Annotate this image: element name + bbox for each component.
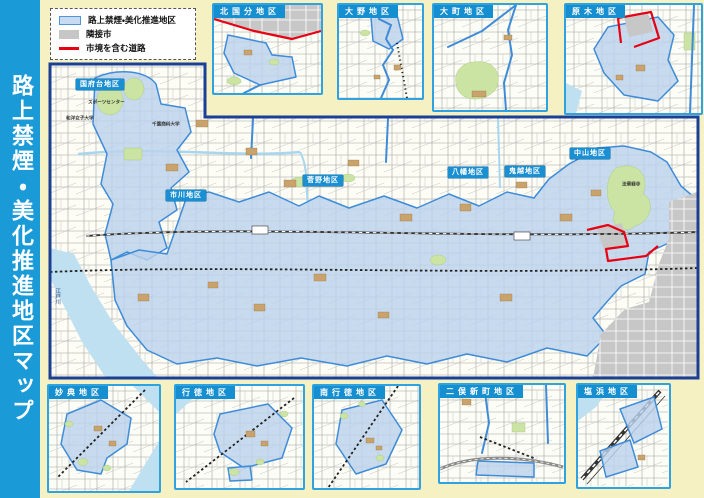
district-swatch-icon: [59, 16, 81, 25]
inset-canvas: [440, 385, 564, 482]
inset-canvas: [578, 385, 668, 486]
map-poster: 路上禁煙・美化推進地区マップ 路上禁煙・美化推進地区 隣接市 市境を含む道路: [0, 0, 704, 498]
inset-label: 北国分地区: [214, 5, 285, 18]
legend-label: 市境を含む道路: [86, 42, 146, 54]
legend-item-district: 路上禁煙・美化推進地区: [59, 14, 187, 26]
inset-map-minamigyotoku: 南行徳地区: [312, 384, 421, 490]
inset-label: 大野地区: [339, 5, 398, 18]
district-label-nakayama: 中山地区: [570, 148, 610, 159]
inset-label: 南行徳地区: [314, 386, 385, 399]
district-label-onigoe: 鬼越地区: [505, 166, 545, 177]
inset-map-myoden: 妙典地区: [47, 384, 161, 493]
legend-label: 隣接市: [86, 28, 112, 40]
inset-canvas: [214, 5, 321, 93]
annotation-edo-river: 江戸川: [54, 288, 60, 305]
park: [430, 255, 446, 265]
inset-map-baraki: 原木地区: [564, 3, 703, 115]
inset-map-kitakokubun: 北国分地区: [212, 3, 323, 95]
park: [124, 148, 142, 160]
neighbor-city-swatch-icon: [59, 30, 79, 39]
district-area: [476, 461, 534, 477]
inset-label: 大町地区: [434, 5, 493, 18]
park: [341, 174, 355, 182]
inset-canvas: [49, 386, 159, 491]
annotation-sports-center: スポーツセンター: [88, 100, 125, 106]
station-box: [514, 232, 530, 240]
park: [124, 78, 144, 100]
inset-canvas: [339, 5, 422, 98]
district-label-yawata: 八幡地区: [448, 167, 488, 178]
inset-map-shiohama: 塩浜地区: [576, 383, 671, 489]
border-road-line-icon: [59, 47, 79, 50]
page-title: 路上禁煙・美化推進地区マップ: [4, 74, 36, 424]
district-label-ichikawa: 市川地区: [166, 190, 206, 201]
inset-label: 二俣新町地区: [440, 385, 523, 398]
legend-item-neighbor-city: 隣接市: [59, 28, 187, 40]
inset-map-gyotoku: 行徳地区: [174, 384, 305, 490]
inset-canvas: [314, 386, 419, 488]
map-legend: 路上禁煙・美化推進地区 隣接市 市境を含む道路: [50, 8, 196, 60]
inset-map-ono: 大野地区: [337, 3, 424, 100]
annotation-hokekyoji-temple: 法華経寺: [622, 182, 640, 188]
legend-item-border-road: 市境を含む道路: [59, 42, 187, 54]
inset-label: 塩浜地区: [578, 385, 637, 398]
station-box: [252, 226, 268, 234]
inset-label: 妙典地区: [49, 386, 108, 399]
district-label-konodai: 国府台地区: [76, 79, 124, 90]
inset-canvas: [566, 5, 701, 113]
annotation-wayo-univ: 和洋女子大学: [66, 116, 94, 122]
inset-label: 行徳地区: [176, 386, 235, 399]
district-label-sugano: 菅野地区: [303, 175, 343, 186]
inset-label: 原木地区: [566, 5, 625, 18]
inset-canvas: [176, 386, 303, 488]
inset-map-futamatashinmachi: 二俣新町地区: [438, 383, 566, 484]
inset-canvas: [434, 5, 546, 110]
legend-label: 路上禁煙・美化推進地区: [88, 14, 176, 26]
inset-map-omachi: 大町地区: [432, 3, 548, 112]
sidebar-title-bar: 路上禁煙・美化推進地区マップ: [0, 0, 40, 498]
annotation-chiba-univ: 千葉商科大学: [152, 122, 180, 128]
